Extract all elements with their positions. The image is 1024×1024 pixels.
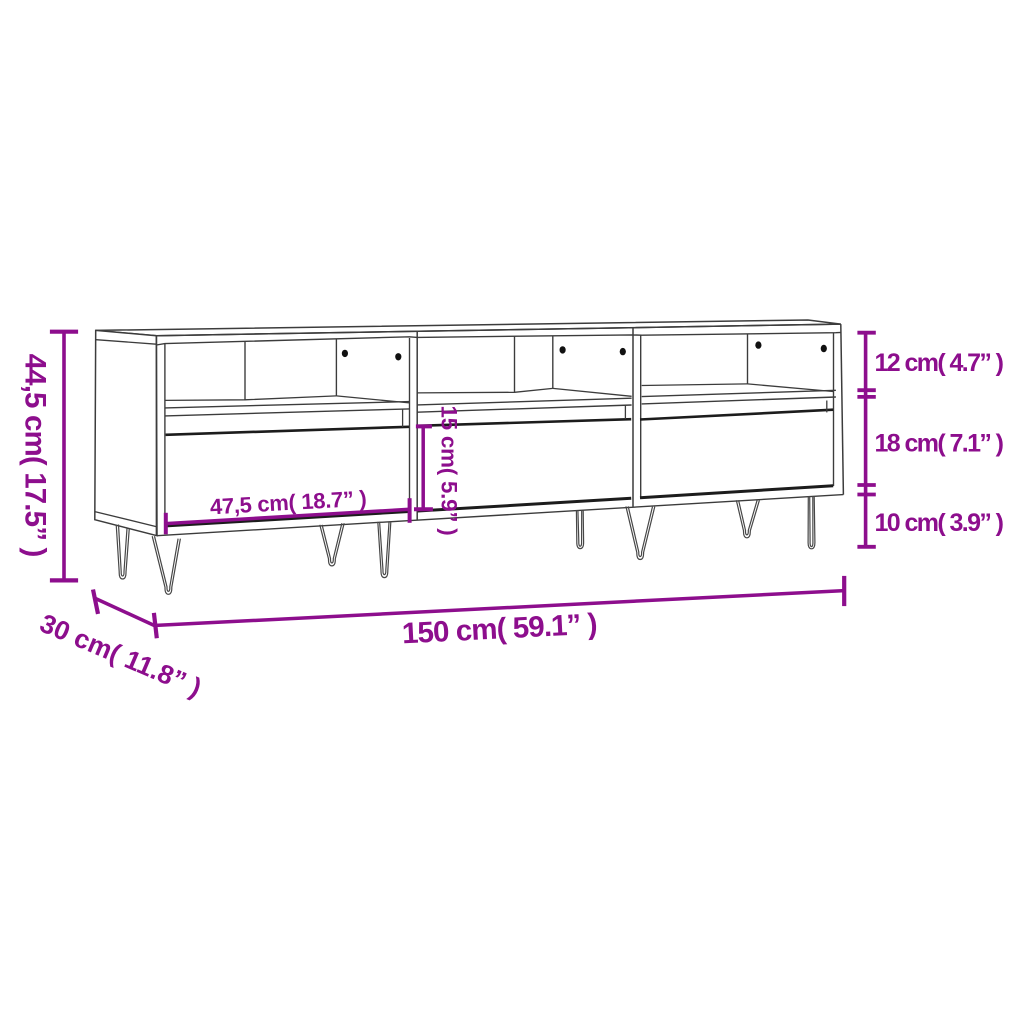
- svg-text:12 cm( 4.7” ): 12 cm( 4.7” ): [875, 349, 1004, 377]
- svg-text:15 cm( 5.9” ): 15 cm( 5.9” ): [436, 405, 461, 535]
- svg-text:44,5 cm( 17.5” ): 44,5 cm( 17.5” ): [18, 354, 51, 557]
- svg-text:150 cm( 59.1” ): 150 cm( 59.1” ): [401, 608, 597, 651]
- svg-text:10 cm( 3.9” ): 10 cm( 3.9” ): [875, 509, 1004, 537]
- svg-text:18 cm( 7.1” ): 18 cm( 7.1” ): [875, 430, 1004, 458]
- svg-text:30 cm( 11.8” ): 30 cm( 11.8” ): [36, 608, 206, 703]
